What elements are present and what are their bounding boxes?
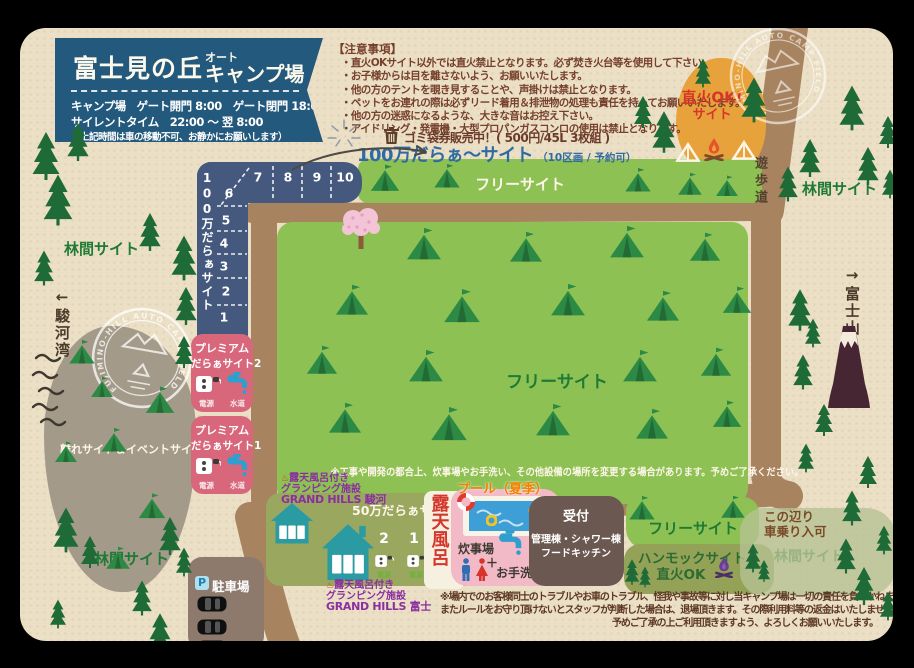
- tree-icon: [31, 132, 61, 180]
- tent-icon: [406, 348, 446, 385]
- car-icon: [197, 618, 227, 636]
- power-outlet-icon: [374, 553, 394, 569]
- tree-icon: [881, 170, 893, 199]
- water-faucet-icon: [496, 530, 524, 556]
- tent-icon: [633, 407, 671, 442]
- million-site-subtitle: （10区画 / 予約可）: [537, 150, 636, 165]
- premium-site-2-label: だらぁサイト2: [191, 356, 253, 371]
- caution-heading: 【注意事項】: [333, 41, 745, 57]
- hanare-event-site-label: 離れサイト＆イベントサイト: [60, 441, 203, 457]
- tent-icon: [676, 171, 704, 197]
- tree-icon: [856, 147, 880, 185]
- tent-icon: [136, 492, 168, 521]
- site-number: 2: [222, 284, 231, 299]
- tree-icon: [879, 592, 893, 621]
- title-tail: キャンプ場: [205, 63, 304, 85]
- liability-warning: ※場内でのお客様同士のトラブルやお車のトラブル、怪我や事故等に対し当キャンプ場は…: [440, 591, 878, 630]
- tent-icon: [67, 338, 97, 366]
- parking-icon: P: [195, 576, 209, 590]
- car-entry-note: この辺り 車乗り入可: [764, 509, 827, 539]
- site-number: 4: [220, 236, 229, 251]
- tent-icon: [368, 163, 402, 194]
- tree-icon: [814, 404, 834, 436]
- forest-site-label: 林間サイト: [64, 238, 139, 259]
- caution-item: ・他の方の迷惑になるような、大きな音はお控え下さい。: [341, 110, 745, 123]
- sea-waves-icon: [28, 350, 68, 430]
- female-restroom-icon: [475, 558, 489, 582]
- tent-icon: [441, 287, 483, 326]
- site-number: 6: [225, 186, 234, 201]
- premium-site-1-label: だらぁサイト1: [191, 438, 253, 453]
- male-restroom-icon: [460, 558, 472, 582]
- water-caption: 水道: [230, 480, 245, 491]
- tree-icon: [757, 560, 771, 582]
- power-outlet-icon: [195, 455, 221, 477]
- map-canvas: 100万だらぁサイト 富士見の丘 オート キャンプ場 キャンプ場 ゲート開門 8…: [20, 28, 893, 641]
- tree-icon: [174, 336, 194, 368]
- tree-icon: [175, 548, 193, 577]
- free-site-label-small: フリーサイト: [648, 518, 738, 539]
- campfire-icon: [713, 556, 735, 578]
- tent-icon: [89, 375, 115, 399]
- walking-path-label: 遊歩道: [750, 156, 769, 207]
- mt-fuji-icon: [828, 326, 870, 408]
- reception-label: 受付: [563, 506, 589, 525]
- site-number: 8: [284, 170, 293, 185]
- tent-icon: [99, 426, 129, 454]
- tree-icon: [52, 508, 80, 553]
- tree-icon: [639, 567, 652, 588]
- hot-spring-icon: ♨: [281, 474, 289, 484]
- tree-icon: [841, 491, 863, 526]
- tent-icon: [428, 405, 470, 444]
- tree-icon: [651, 111, 677, 153]
- gojuman-site-1: 1: [409, 531, 419, 547]
- tent-icon: [333, 283, 371, 318]
- premium-site-2: プレミアム だらぁサイト2 電源 水道: [191, 334, 253, 412]
- water-faucet-icon: [225, 372, 249, 395]
- car-icon: [197, 595, 227, 613]
- facility-change-notice: ※工事や開発の都合上、炊事場やお手洗い、その他設備の場所を変更する場合があります…: [330, 464, 803, 479]
- water-faucet-icon: [225, 454, 249, 477]
- swim-ring-icon: [455, 491, 477, 513]
- tent-icon: [720, 285, 754, 316]
- right-arrow-icon: →: [843, 266, 861, 286]
- caution-item: ・お子様からは目を離さないよう、お願いいたします。: [341, 70, 745, 83]
- tree-icon: [797, 444, 815, 473]
- camp-title: 富士見の丘 オート キャンプ場: [73, 49, 304, 85]
- water-caption: 水道: [230, 398, 245, 409]
- tree-icon: [777, 167, 799, 202]
- glamping-house-icon: [268, 503, 316, 545]
- site-number: 5: [222, 213, 231, 228]
- premium-label: プレミアム: [191, 422, 253, 438]
- tree-icon: [804, 319, 822, 348]
- power-caption: 電源: [409, 570, 423, 580]
- sketch-arrow: [286, 140, 441, 174]
- power-outlet-icon: [406, 553, 426, 569]
- tent-outline-icon: [731, 139, 757, 162]
- power-caption: 電源: [199, 480, 214, 491]
- tent-icon: [507, 230, 545, 265]
- tent-icon: [698, 346, 734, 379]
- tent-icon: [404, 226, 444, 263]
- tree-icon: [66, 123, 90, 161]
- open-air-bath-label: 露天風呂: [429, 494, 449, 589]
- parking-label: 駐車場: [212, 576, 250, 595]
- yellow-ring-icon: [486, 515, 497, 526]
- premium-site-1: プレミアム だらぁサイト1 電源 水道: [191, 416, 253, 494]
- tree-icon: [131, 581, 153, 616]
- glamping-house-icon: [320, 524, 376, 582]
- tree-icon: [170, 236, 198, 281]
- power-outlet-icon: [195, 373, 221, 395]
- tent-icon: [104, 545, 132, 571]
- site-number: 9: [313, 170, 322, 185]
- tent-icon: [644, 289, 682, 324]
- tree-icon: [792, 355, 814, 390]
- caution-item: ・直火OKサイト以外では直火禁止となります。必ず焚き火台等を使用して下さい。: [341, 57, 745, 70]
- tree-icon: [694, 59, 712, 88]
- campfire-icon: [702, 137, 726, 161]
- power-caption: 電源: [377, 570, 391, 580]
- left-arrow-icon: ←: [53, 288, 71, 308]
- tree-icon: [878, 116, 893, 148]
- tree-icon: [33, 251, 55, 286]
- tree-icon: [858, 456, 878, 488]
- site-number: 3: [220, 259, 229, 274]
- tent-icon: [143, 385, 177, 416]
- glamping-suruga-label: ♨露天風呂付き グランピング施設 GRAND HILLS 駿河: [281, 474, 386, 506]
- tent-icon: [432, 162, 462, 190]
- tent-icon: [687, 231, 723, 264]
- tree-icon: [174, 287, 198, 325]
- gojuman-site-2: 2: [379, 531, 389, 547]
- tent-icon: [623, 166, 653, 194]
- tent-icon: [710, 399, 744, 430]
- hot-spring-icon: ♨: [326, 581, 334, 591]
- tree-icon: [147, 613, 173, 641]
- site-number: 10: [336, 170, 353, 185]
- tent-icon: [620, 348, 660, 385]
- tent-icon: [719, 494, 747, 520]
- tent-icon: [53, 440, 79, 464]
- silent-time: サイレントタイム 22:00 ～ 翌 8:00: [71, 114, 263, 130]
- free-site-label-center: フリーサイト: [506, 368, 608, 393]
- title-main: 富士見の丘: [73, 49, 203, 85]
- glamping-fuji-label: ♨露天風呂付き グランピング施設 GRAND HILLS 富士: [326, 581, 431, 613]
- tent-icon: [326, 401, 364, 436]
- tree-icon: [852, 567, 876, 605]
- tent-icon: [627, 494, 657, 522]
- premium-label: プレミアム: [191, 340, 253, 356]
- tent-outline-icon: [675, 141, 701, 164]
- tree-icon: [49, 600, 67, 629]
- tree-icon: [633, 96, 653, 128]
- campground-map-poster: 100万だらぁサイト 富士見の丘 オート キャンプ場 キャンプ場 ゲート開門 8…: [0, 0, 914, 668]
- silent-time-note: （上記時間は車の移動不可、お静かにお願いします）: [71, 129, 287, 143]
- admin-shower-label: 管理棟・シャワー棟: [531, 531, 621, 546]
- tree-icon: [80, 536, 100, 568]
- banner-divider: [71, 90, 299, 92]
- tree-icon: [838, 86, 866, 131]
- tree-icon: [798, 139, 822, 177]
- tent-icon: [714, 174, 740, 198]
- tent-icon: [533, 402, 573, 439]
- car-icon: [197, 639, 227, 641]
- tree-icon: [740, 78, 768, 123]
- tent-icon: [607, 224, 647, 261]
- site-number: 1: [220, 310, 229, 325]
- hammock-fire-ok-label: 直火OK: [657, 563, 706, 583]
- cherry-blossom-tree-icon: [340, 205, 382, 251]
- tree-icon: [875, 526, 893, 555]
- tent-icon: [548, 282, 588, 319]
- free-site-label-top: フリーサイト: [475, 174, 565, 195]
- tent-icon: [304, 344, 340, 377]
- tree-icon: [42, 175, 74, 226]
- title-banner: 富士見の丘 オート キャンプ場 キャンプ場 ゲート開門 8:00 ゲート閉門 1…: [55, 38, 323, 142]
- open-fire-site-label: サイト: [692, 104, 731, 123]
- site-number: 7: [254, 170, 263, 185]
- tree-icon: [138, 213, 162, 251]
- gate-hours: キャンプ場 ゲート開門 8:00 ゲート閉門 18:00: [71, 98, 325, 114]
- food-kitchen-label: フードキッチン: [541, 545, 611, 560]
- power-caption: 電源: [199, 398, 214, 409]
